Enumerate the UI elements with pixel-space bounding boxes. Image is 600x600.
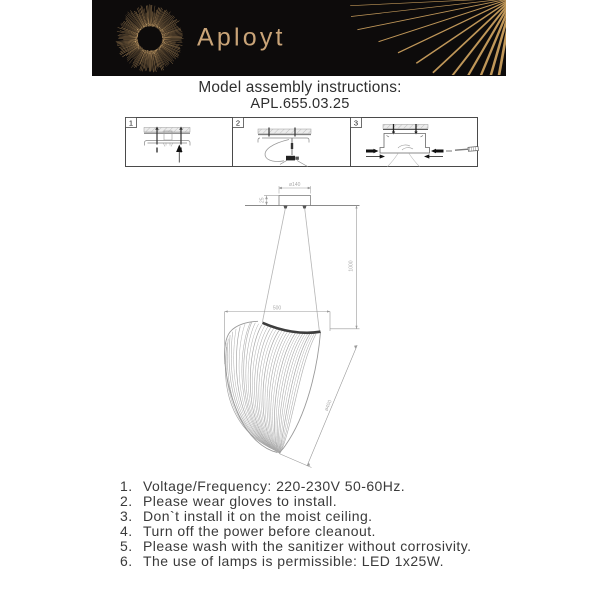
svg-text:500: 500	[273, 306, 282, 312]
svg-text:25: 25	[260, 197, 266, 203]
svg-text:ø140: ø140	[289, 182, 301, 188]
svg-text:3: 3	[354, 118, 358, 127]
svg-text:2: 2	[236, 118, 240, 127]
svg-text:1000: 1000	[349, 260, 355, 271]
svg-text:1: 1	[129, 118, 133, 127]
